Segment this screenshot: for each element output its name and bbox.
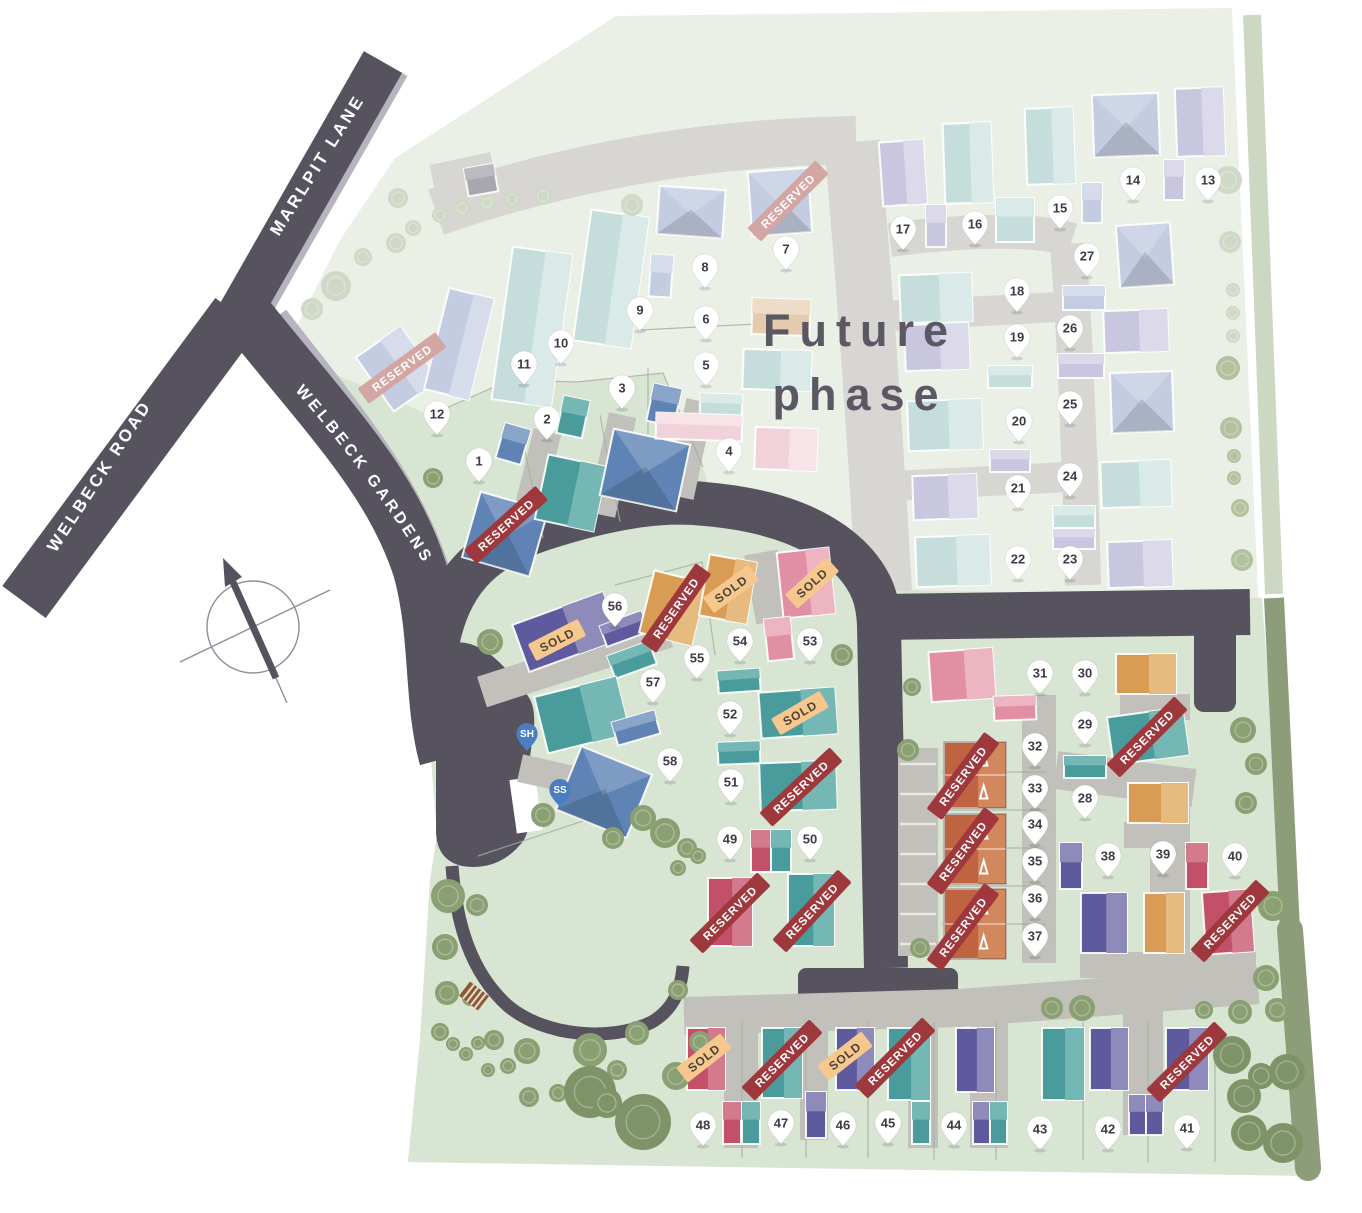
svg-text:41: 41	[1180, 1121, 1194, 1136]
tree-olive	[459, 1047, 473, 1061]
svg-text:7: 7	[782, 242, 789, 257]
svg-text:5: 5	[702, 358, 709, 373]
building-duo	[1175, 87, 1225, 157]
building-strip	[1129, 1095, 1146, 1135]
svg-text:22: 22	[1011, 552, 1025, 567]
tree-olive	[431, 879, 465, 913]
svg-text:46: 46	[836, 1118, 850, 1133]
tree-pale	[1226, 306, 1240, 320]
svg-text:20: 20	[1012, 414, 1026, 429]
tree-olive	[1069, 995, 1095, 1021]
tree-pale	[388, 188, 408, 208]
building-strip	[717, 669, 760, 694]
building-duo	[1100, 460, 1172, 508]
svg-text:35: 35	[1028, 854, 1042, 869]
tree-sage	[1227, 471, 1241, 485]
tree-olive	[1265, 998, 1289, 1022]
svg-text:28: 28	[1078, 791, 1092, 806]
future-phase-label-line2: phase	[772, 369, 947, 420]
svg-text:49: 49	[723, 832, 737, 847]
tree-olive	[668, 980, 688, 1000]
tree-olive	[1195, 1001, 1213, 1019]
tree-olive	[1228, 1000, 1252, 1024]
tree-pale	[386, 233, 406, 253]
building-strip	[718, 741, 761, 764]
svg-text:51: 51	[724, 775, 738, 790]
tree-dark	[1227, 1079, 1261, 1113]
svg-text:12: 12	[430, 407, 444, 422]
tree-olive	[602, 827, 624, 849]
tree-pale	[354, 248, 372, 266]
svg-text:15: 15	[1053, 201, 1067, 216]
building-duo	[943, 122, 994, 204]
svg-text:43: 43	[1033, 1122, 1047, 1137]
tree-pale	[534, 187, 552, 205]
tree-olive	[1041, 997, 1063, 1019]
tree-dark	[615, 1094, 671, 1150]
svg-text:29: 29	[1078, 717, 1092, 732]
svg-text:56: 56	[608, 599, 622, 614]
building-duo	[879, 140, 927, 207]
building-strip	[1058, 354, 1104, 378]
svg-text:3: 3	[618, 381, 625, 396]
tree-olive	[484, 1030, 504, 1050]
svg-text:24: 24	[1063, 469, 1078, 484]
building-strip	[912, 1102, 930, 1144]
building-strip	[996, 198, 1034, 242]
tree-pale	[1219, 231, 1241, 253]
boundary-hedge-pale	[1252, 15, 1274, 594]
svg-text:SH: SH	[520, 729, 534, 740]
building-duo	[1116, 654, 1176, 694]
building-strip	[751, 830, 771, 872]
building-hip	[1116, 222, 1174, 288]
building-duo	[1144, 893, 1184, 953]
tree-olive	[831, 644, 853, 666]
svg-text:4: 4	[725, 444, 733, 459]
building-strip	[994, 695, 1037, 720]
building-strip	[1053, 529, 1095, 549]
building-duo	[1090, 1028, 1128, 1090]
tree-olive	[625, 1021, 649, 1045]
tree-dark	[1269, 1054, 1305, 1090]
tree-dark	[592, 1088, 622, 1118]
road-east-hammerhead	[1194, 600, 1236, 712]
svg-text:48: 48	[696, 1118, 710, 1133]
tree-olive	[897, 739, 919, 761]
building-strip	[464, 164, 498, 197]
site-plan: RESERVEDRESERVEDRESERVEDSOLDRESERVEDSOLD…	[0, 0, 1362, 1213]
svg-text:31: 31	[1033, 666, 1047, 681]
svg-text:19: 19	[1010, 330, 1024, 345]
building-strip	[742, 1102, 760, 1144]
svg-text:53: 53	[803, 634, 817, 649]
svg-text:1: 1	[475, 454, 482, 469]
tree-sage	[1231, 549, 1253, 571]
building-strip	[1053, 506, 1095, 528]
svg-text:17: 17	[896, 222, 910, 237]
svg-text:10: 10	[554, 336, 568, 351]
building-duo	[956, 1028, 994, 1092]
svg-text:36: 36	[1028, 891, 1042, 906]
building-duo	[912, 474, 977, 520]
building-duo	[1081, 893, 1127, 953]
tree-pale	[321, 271, 351, 301]
building-strip	[1064, 756, 1106, 778]
tree-olive	[1253, 965, 1279, 991]
svg-text:38: 38	[1101, 849, 1115, 864]
building-duo	[1103, 309, 1168, 353]
tree-dark	[1263, 1123, 1303, 1163]
svg-text:44: 44	[947, 1118, 962, 1133]
building-strip	[988, 366, 1032, 388]
tree-olive	[903, 678, 921, 696]
svg-text:58: 58	[663, 754, 677, 769]
tree-olive	[573, 1033, 607, 1067]
svg-text:34: 34	[1028, 817, 1043, 832]
tree-olive	[477, 629, 503, 655]
building-duo	[1025, 107, 1076, 185]
tree-olive	[670, 860, 686, 876]
tree-olive	[481, 1063, 495, 1077]
svg-text:57: 57	[646, 675, 660, 690]
svg-text:26: 26	[1063, 321, 1077, 336]
tree-dark	[1231, 1115, 1267, 1151]
tree-olive	[690, 848, 706, 864]
future-phase-label-line1: Future	[763, 305, 957, 356]
tree-pale	[405, 220, 421, 236]
tree-pale	[621, 194, 643, 216]
svg-text:39: 39	[1156, 847, 1170, 862]
compass-icon	[180, 558, 330, 703]
svg-text:25: 25	[1063, 397, 1077, 412]
building-strip	[700, 393, 743, 416]
tree-pale	[301, 298, 323, 320]
svg-text:18: 18	[1010, 284, 1024, 299]
building-strip	[723, 1102, 741, 1144]
building-strip	[649, 254, 674, 297]
parking-bays	[898, 748, 938, 956]
building-strip	[764, 617, 794, 661]
tree-sage	[1231, 499, 1249, 517]
tree-olive	[431, 1023, 449, 1041]
tree-olive	[650, 818, 680, 848]
tree-olive	[446, 1037, 460, 1051]
svg-text:SS: SS	[553, 785, 567, 796]
svg-text:23: 23	[1063, 552, 1077, 567]
building-duo	[915, 535, 991, 588]
tree-olive	[432, 934, 458, 960]
building-strip	[990, 450, 1030, 472]
tree-olive	[910, 938, 930, 958]
svg-text:50: 50	[803, 832, 817, 847]
building-strip	[973, 1102, 990, 1144]
tree-pale	[454, 200, 470, 216]
svg-text:54: 54	[733, 634, 748, 649]
svg-text:33: 33	[1028, 781, 1042, 796]
svg-text:32: 32	[1028, 739, 1042, 754]
svg-text:52: 52	[723, 707, 737, 722]
svg-text:55: 55	[690, 651, 704, 666]
building-duo	[1128, 783, 1188, 823]
building-strip	[806, 1092, 826, 1138]
svg-text:2: 2	[543, 412, 550, 427]
building-duo	[1107, 540, 1173, 588]
tree-pale	[432, 207, 448, 223]
building-strip	[1063, 286, 1105, 310]
building-strip	[926, 205, 946, 247]
tree-olive	[1235, 792, 1257, 814]
tree-olive	[435, 981, 459, 1005]
tree-sage	[1220, 417, 1242, 439]
tree-olive	[423, 468, 443, 488]
building-duo	[1042, 1028, 1084, 1100]
tree-sage	[1227, 449, 1241, 463]
svg-text:30: 30	[1078, 666, 1092, 681]
svg-text:14: 14	[1126, 173, 1141, 188]
svg-text:13: 13	[1201, 173, 1215, 188]
tree-olive	[1245, 753, 1267, 775]
road-welbeck-road	[24, 314, 237, 602]
svg-text:6: 6	[702, 312, 709, 327]
building-duo	[928, 648, 995, 702]
tree-olive	[471, 1036, 485, 1050]
building-strip	[990, 1102, 1007, 1144]
building-hip	[600, 429, 690, 512]
tree-olive	[500, 1058, 516, 1074]
tree-sage	[1216, 356, 1240, 380]
svg-text:16: 16	[968, 217, 982, 232]
building-strip	[1082, 183, 1102, 223]
tree-olive	[519, 1087, 539, 1107]
tree-pale	[504, 191, 520, 207]
svg-text:21: 21	[1011, 481, 1025, 496]
tree-olive	[514, 1038, 540, 1064]
svg-text:27: 27	[1080, 249, 1094, 264]
svg-text:9: 9	[636, 303, 643, 318]
building-hip	[1110, 371, 1174, 433]
tree-olive	[1230, 717, 1256, 743]
building-strip	[1164, 160, 1184, 200]
building-hip	[1092, 93, 1160, 157]
map-canvas: RESERVEDRESERVEDRESERVEDSOLDRESERVEDSOLD…	[0, 0, 1362, 1213]
svg-text:42: 42	[1101, 1122, 1115, 1137]
tree-olive	[531, 803, 555, 827]
svg-text:11: 11	[517, 357, 531, 372]
building-duo	[754, 427, 817, 471]
tree-pale	[1226, 283, 1240, 297]
tree-olive	[466, 894, 488, 916]
svg-text:45: 45	[881, 1116, 895, 1131]
building-strip	[1186, 843, 1208, 889]
building-hip	[656, 186, 725, 238]
tree-pale	[479, 195, 495, 211]
svg-text:47: 47	[774, 1116, 788, 1131]
building-strip	[1060, 843, 1082, 889]
tree-pale	[1226, 329, 1240, 343]
svg-text:8: 8	[701, 260, 708, 275]
building-duo	[535, 454, 607, 531]
building-strip	[771, 830, 791, 872]
svg-text:37: 37	[1028, 929, 1042, 944]
svg-text:40: 40	[1228, 849, 1242, 864]
building-strip	[656, 413, 743, 442]
